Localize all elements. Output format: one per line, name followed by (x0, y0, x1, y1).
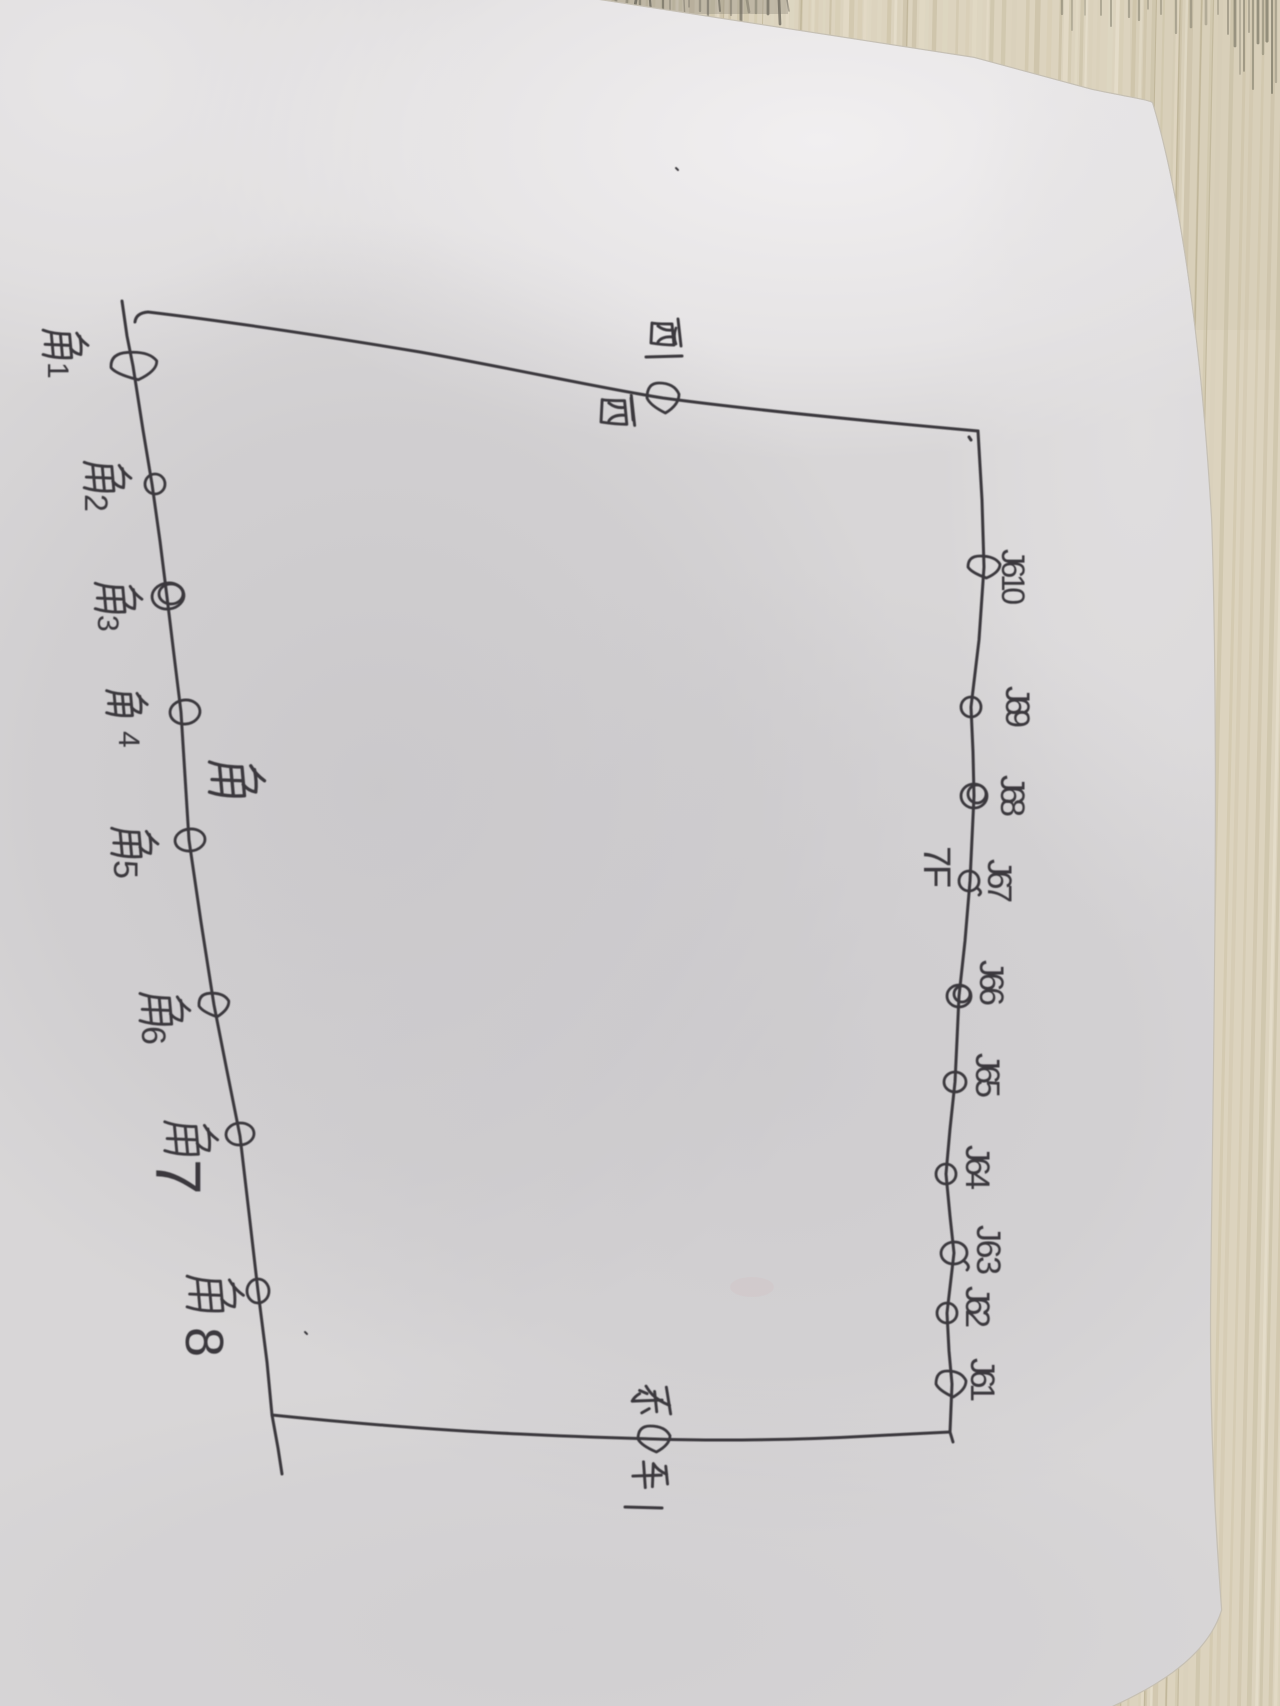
svg-text:J64: J64 (958, 1145, 996, 1190)
svg-text:J69: J69 (998, 686, 1036, 728)
svg-text:4: 4 (112, 731, 145, 748)
svg-text:2: 2 (78, 494, 114, 512)
svg-text:J62: J62 (958, 1286, 996, 1328)
svg-text:7F: 7F (915, 846, 957, 888)
svg-text:J610: J610 (995, 549, 1031, 605)
svg-text:J63: J63 (969, 1225, 1007, 1275)
svg-text:1: 1 (41, 362, 74, 379)
svg-text:J66: J66 (972, 960, 1010, 1006)
svg-text:3: 3 (91, 615, 124, 632)
svg-text:J61: J61 (963, 1358, 1001, 1402)
svg-text:7: 7 (142, 1159, 214, 1195)
svg-text:8: 8 (174, 1327, 234, 1357)
svg-text:J68: J68 (993, 775, 1031, 817)
svg-text:J67: J67 (980, 859, 1018, 903)
svg-text:6: 6 (134, 1026, 172, 1045)
svg-text:5: 5 (106, 860, 144, 879)
svg-text:J65: J65 (968, 1053, 1006, 1098)
